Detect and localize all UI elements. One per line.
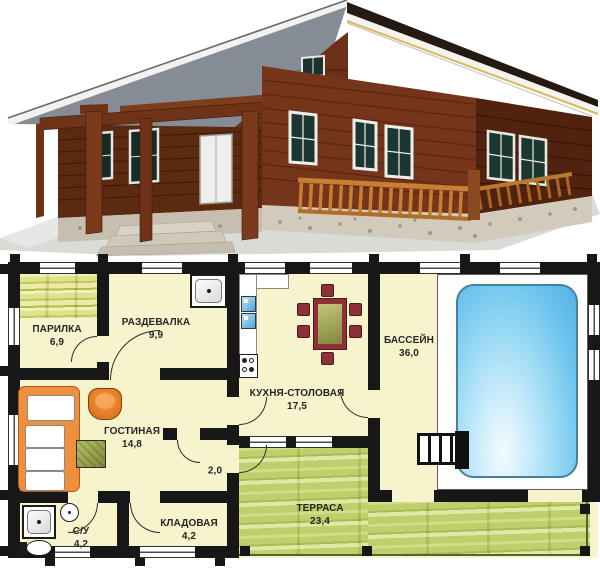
wall (90, 546, 140, 558)
wall (182, 262, 245, 274)
log-end (10, 254, 20, 263)
terrace-post (580, 504, 590, 514)
room-label-parilka: ПАРИЛКА 6,9 (32, 323, 81, 349)
room-name: РАЗДЕВАЛКА (122, 317, 190, 328)
room-name: КУХНЯ-СТОЛОВАЯ (250, 388, 345, 399)
room-label-bassein: БАССЕЙН 36,0 (384, 334, 434, 360)
wall (117, 503, 129, 558)
pool (456, 284, 578, 478)
floor-plan: ПАРИЛКА 6,9 РАЗДЕВАЛКА 9,9 КУХНЯ-СТОЛОВА… (0, 258, 600, 576)
log-end (98, 254, 108, 263)
wall (352, 262, 420, 274)
room-name: ПАРИЛКА (32, 324, 81, 335)
wall (97, 274, 109, 336)
wall (163, 428, 177, 440)
dining-table-icon (313, 298, 347, 350)
log-end (460, 254, 470, 263)
porch-post (36, 123, 44, 218)
room-name: ГОСТИНАЯ (104, 426, 160, 437)
wall (368, 274, 380, 390)
room-area: 9,9 (149, 330, 163, 341)
chair-icon (321, 284, 334, 297)
room-area: 17,5 (287, 401, 307, 412)
window (290, 112, 316, 164)
coffee-table-icon (76, 440, 106, 468)
log-end (215, 558, 225, 566)
side-wall (476, 98, 592, 214)
shower-icon (22, 505, 56, 539)
log-end (135, 558, 145, 566)
window-opening (8, 308, 20, 345)
terrace-post (240, 546, 250, 556)
armchair-icon (88, 388, 122, 420)
wall (285, 262, 310, 274)
pool-ladder-icon (417, 433, 457, 465)
wall (582, 490, 600, 502)
wall (200, 428, 239, 440)
project-sheet: ПАРИЛКА 6,9 РАЗДЕВАЛКА 9,9 КУХНЯ-СТОЛОВА… (0, 0, 600, 576)
log-end (0, 366, 8, 376)
room-name: БАССЕЙН (384, 335, 434, 346)
wall (160, 491, 239, 503)
freezer-icon (241, 313, 256, 329)
wall (434, 490, 528, 502)
sauna-bench-icon (20, 274, 98, 318)
pool-ladder-post (455, 431, 469, 469)
chair-icon (321, 352, 334, 365)
log-end (0, 264, 8, 274)
window-opening (40, 262, 75, 274)
wall (75, 262, 142, 274)
wall (8, 262, 20, 308)
log-end (228, 254, 238, 263)
window (354, 120, 376, 170)
window-opening (310, 262, 352, 274)
terrace-post (362, 546, 372, 556)
chair-icon (297, 325, 310, 338)
room-label-kuhnya: КУХНЯ-СТОЛОВАЯ 17,5 (250, 387, 345, 413)
room-area: 6,9 (50, 337, 64, 348)
wall (332, 436, 380, 448)
porch-post (140, 118, 152, 242)
wall (227, 380, 239, 397)
window-opening (142, 262, 182, 274)
window-opening (420, 262, 460, 274)
window (386, 126, 412, 178)
wall (227, 274, 239, 380)
log-end (0, 546, 8, 556)
terrace-edge (239, 554, 590, 556)
wall (588, 335, 600, 350)
log-end (0, 490, 8, 500)
wall (368, 490, 392, 502)
log-end (369, 254, 379, 263)
room-area: 23,4 (310, 516, 330, 527)
chair-icon (349, 325, 362, 338)
stove-icon (239, 354, 258, 378)
porch-post (242, 111, 258, 240)
porch-post (86, 111, 102, 234)
sofa-icon (18, 386, 80, 492)
room-area: 4,2 (74, 539, 88, 550)
room-label-kladovaya: КЛАДОВАЯ 4,2 (160, 517, 218, 543)
wall (286, 436, 296, 448)
room-area: 4,2 (182, 531, 196, 542)
room-label-gostinaya: ГОСТИНАЯ 14,8 (104, 425, 160, 451)
room-name: КЛАДОВАЯ (160, 518, 218, 529)
window-opening (588, 350, 600, 380)
log-end (45, 558, 55, 566)
railing-corner-post (468, 170, 480, 220)
room-label-hall: 2,0 (208, 465, 222, 478)
room-label-terrasa: ТЕРРАСА 23,4 (296, 502, 343, 528)
room-label-razdevalka: РАЗДЕВАЛКА 9,9 (122, 316, 190, 342)
terrace-deck (368, 502, 590, 556)
wall (588, 262, 600, 305)
chair-icon (349, 303, 362, 316)
room-area: 2,0 (208, 466, 222, 477)
shower-icon (190, 274, 227, 308)
washbasin-icon (60, 503, 79, 522)
toilet-icon (26, 540, 52, 556)
terrace-post (580, 546, 590, 556)
chair-icon (297, 303, 310, 316)
wall (160, 368, 239, 380)
wall (227, 473, 239, 558)
wall (588, 380, 600, 502)
room-name: ТЕРРАСА (296, 503, 343, 514)
window-opening (296, 436, 332, 448)
room-area: 36,0 (399, 348, 419, 359)
room-name: С/У (73, 526, 90, 537)
room-label-su: С/У 4,2 (73, 525, 90, 551)
front-door (200, 134, 232, 204)
wall (460, 262, 500, 274)
window-opening (140, 546, 195, 558)
log-end (587, 254, 597, 263)
wall (98, 491, 130, 503)
room-area: 14,8 (122, 439, 142, 450)
wall (8, 491, 68, 503)
house-render (0, 0, 600, 258)
fridge-icon (241, 296, 256, 312)
window-opening (500, 262, 540, 274)
front-wall (262, 66, 476, 214)
window-opening (245, 262, 285, 274)
window (488, 131, 514, 181)
wall (8, 368, 109, 380)
window-opening (588, 305, 600, 335)
